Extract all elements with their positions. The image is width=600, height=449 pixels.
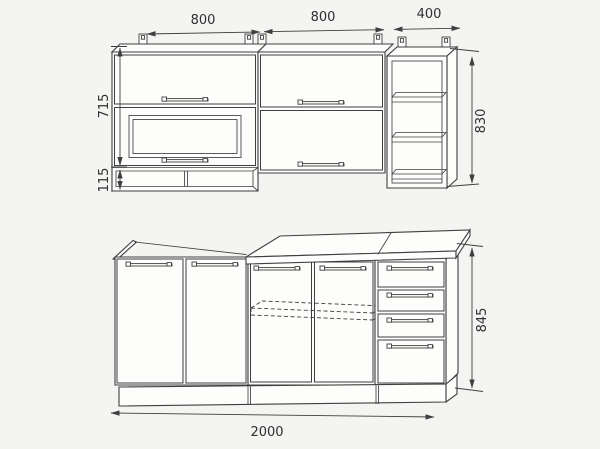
dimension-label-wall-right-width: 400 xyxy=(417,7,442,22)
kitchen-technical-drawing: 800 800 400 xyxy=(0,0,600,449)
hanger-bracket xyxy=(442,37,450,47)
door-panel xyxy=(186,259,246,383)
dimension-line-wall-left-width xyxy=(147,32,260,34)
cabinet-top-surface xyxy=(258,44,393,52)
dimension-line-wall-right-width xyxy=(394,28,460,29)
hanger-bracket xyxy=(398,37,406,47)
dimension-line-wall-middle-width xyxy=(264,30,384,32)
dimension-label-wall-niche-height: 115 xyxy=(97,168,112,193)
hanger-bracket xyxy=(258,34,266,44)
shelf-unit-front-frame xyxy=(387,56,447,188)
wall-shelf-unit-400 xyxy=(387,37,457,188)
base-units-elevation: 845 2000 xyxy=(111,230,490,440)
hanger-bracket xyxy=(374,34,382,44)
flip-door-panel xyxy=(115,55,256,104)
dimension-line-base-total-width xyxy=(111,413,434,417)
base-drawer-unit xyxy=(375,247,458,385)
dimension-label-base-height: 845 xyxy=(475,308,490,333)
dimension-label-base-total-width: 2000 xyxy=(250,425,283,440)
door-panel xyxy=(315,262,374,382)
flip-door-panel xyxy=(261,111,383,171)
dimension-label-wall-total-height: 830 xyxy=(474,109,489,134)
plinth-front xyxy=(119,384,446,406)
dimension-label-wall-doors-height: 715 xyxy=(97,94,112,119)
flip-door-panel xyxy=(261,55,383,107)
door-panel xyxy=(117,259,183,383)
wall-cabinet-middle-800 xyxy=(258,34,393,173)
dimension-label-wall-middle-width: 800 xyxy=(311,10,336,25)
drawer-front xyxy=(378,314,444,337)
door-panel xyxy=(251,262,312,382)
wall-units-elevation: 800 800 400 xyxy=(97,7,489,192)
wall-cabinet-left-800 xyxy=(112,34,266,191)
drawer-unit-side-panel xyxy=(446,247,458,385)
base-cabinet-middle xyxy=(248,259,384,385)
glass-door-panel xyxy=(115,108,256,166)
countertop xyxy=(246,230,470,264)
shelf-unit-side-panel xyxy=(447,47,457,188)
hanger-bracket xyxy=(139,34,147,44)
base-cabinet-sink-left xyxy=(113,241,248,386)
dimension-height-845: 845 xyxy=(455,244,490,392)
dimension-top-widths: 800 800 400 xyxy=(147,7,460,34)
cabinet-top-surface xyxy=(112,44,266,52)
hanger-bracket xyxy=(245,34,253,44)
dimension-width-2000: 2000 xyxy=(111,413,434,440)
dimension-label-wall-left-width: 800 xyxy=(191,13,216,28)
carcass-back-top-edge xyxy=(135,242,246,255)
shelf-unit-top-surface xyxy=(387,47,457,56)
